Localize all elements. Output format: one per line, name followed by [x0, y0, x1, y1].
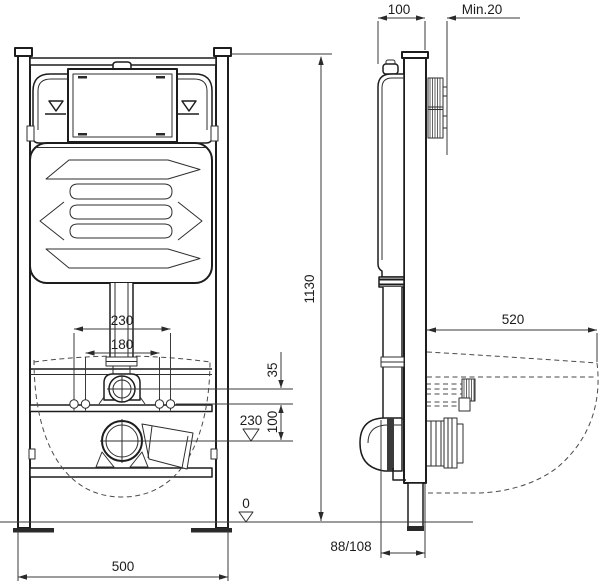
dim-label-500: 500	[112, 559, 135, 574]
side-supply-connection	[426, 379, 476, 411]
level-triangle-icon	[243, 429, 259, 441]
dim-label-35: 35	[265, 362, 280, 377]
dim-label-min20: Min.20	[462, 2, 503, 17]
dim-wall-cover: Min.20	[447, 2, 520, 155]
dim-label-520: 520	[502, 312, 525, 327]
dim-label-100-offset: 100	[265, 411, 280, 434]
cistern-access-area	[27, 62, 218, 143]
drain-outlet	[96, 419, 148, 467]
outlet-duct	[142, 424, 193, 469]
level-marker-floor: 0	[239, 496, 253, 522]
drawing-canvas: 230 180 35 100 230	[0, 0, 608, 583]
side-view	[360, 52, 598, 531]
side-frame-foot	[408, 483, 423, 527]
drain-connector-side	[426, 418, 463, 468]
foot-plate-left	[13, 528, 54, 533]
cistern-profile	[378, 60, 404, 287]
frame-cap-left	[15, 48, 32, 56]
dim-label-230-outer: 230	[111, 313, 134, 328]
level-triangle-icon	[239, 512, 253, 522]
flush-elbow	[360, 418, 406, 480]
front-view	[13, 48, 232, 533]
side-frame-upright	[404, 58, 426, 483]
dim-bowl-projection: 520	[427, 312, 597, 362]
dim-label-1130: 1130	[302, 274, 317, 303]
dim-label-230-level: 230	[240, 413, 263, 428]
dim-label-180: 180	[111, 337, 134, 352]
panel-tab	[113, 62, 131, 69]
technical-drawing: 230 180 35 100 230	[0, 0, 608, 583]
cistern-body	[30, 143, 212, 283]
flush-plate-housing	[428, 78, 447, 138]
flush-pipe-side	[381, 287, 404, 420]
dim-label-0: 0	[242, 496, 250, 511]
frame-bottom-rail	[30, 468, 212, 477]
dim-label-88-108: 88/108	[330, 539, 371, 554]
frame-lower-rail	[30, 405, 212, 412]
level-marker-outlet: 230	[240, 413, 263, 441]
dim-frame-width: 500	[18, 531, 228, 581]
foot-plate-right	[191, 528, 232, 533]
dim-label-100-depth: 100	[388, 2, 411, 17]
dim-supply-offset: 35	[135, 352, 293, 404]
dim-frame-height: 1130	[230, 54, 332, 521]
cistern-top-button	[383, 64, 398, 74]
side-frame	[402, 52, 428, 531]
frame-cap-right	[214, 48, 231, 56]
